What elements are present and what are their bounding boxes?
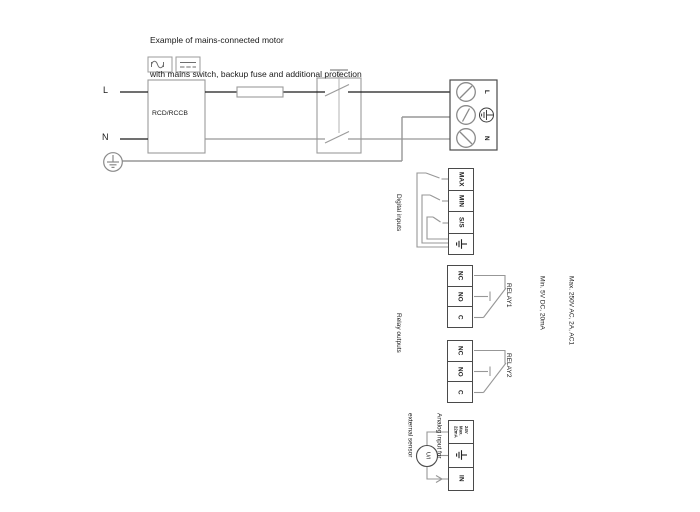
relay1-label: RELAY1 [503,283,513,325]
terminal-in-label: IN [458,475,465,482]
earth-ground-icon [455,449,468,461]
n-conductor-label: N [102,132,109,142]
relay1-c-label: C [457,315,464,320]
earth-ground-icon [480,108,494,122]
digital-input-switches [417,173,448,247]
terminal-min: MIN [449,191,473,213]
rcd-label: RCD/RCCB [152,110,188,117]
relay1-terminal-c: C [448,307,472,327]
relay2-c-label: C [457,390,464,395]
digital-inputs-section-label: Digital inputs [391,186,405,240]
relay1-terminal-block: NC NO C [447,265,473,328]
analog-label-line-1: Analog input for [434,413,444,493]
relay2-nc-label: NC [457,346,464,356]
relay-rating-text: Max. 250V AC, 2A, AC1 Min. 5V DC, 20mA [517,276,595,382]
diagram-title: Example of mains-connected motor with ma… [150,13,362,103]
relay2-no-label: NO [457,367,464,377]
l-conductor-label: L [103,85,108,95]
title-line-2: with mains switch, backup fuse and addit… [150,69,362,80]
supply-max: Max. [458,426,463,438]
terminal-ss-label: S/S [458,217,465,228]
relay2-terminal-nc: NC [448,341,472,362]
earth-ground-icon [104,153,123,172]
terminal-ss: S/S [449,212,473,234]
supply-24v: 24V [464,426,469,438]
relay-rating-min: Min. 5V DC, 20mA [537,276,547,382]
earth-ground-icon [455,238,468,250]
relay-outputs-section-label: Relay outputs [391,303,405,363]
sensor-ui-label: U/I [420,446,435,466]
relay2-label: RELAY2 [503,353,513,395]
digital-inputs-terminal-block: MAX MIN S/S [448,168,474,255]
wiring-diagram: Example of mains-connected motor with ma… [0,0,700,512]
analog-label-line-2: external sensor [405,413,415,493]
relay1-no-label: NO [457,292,464,302]
terminal-24v: 24V Max. 22mA [449,421,473,444]
terminal-min-label: MIN [458,195,465,207]
terminal-max: MAX [449,169,473,191]
terminal-label-l: L [480,84,493,100]
terminal-analog-ground [449,444,473,467]
screw-terminal-icon [457,83,476,148]
relay1-contact [474,276,506,318]
terminal-max-label: MAX [458,172,465,187]
supply-ma: 22mA [453,426,458,438]
relay1-nc-label: NC [457,271,464,281]
relay-rating-max: Max. 250V AC, 2A, AC1 [566,276,576,382]
relay2-contact [474,351,506,393]
terminal-in: IN [449,468,473,490]
relay2-terminal-block: NC NO C [447,340,473,403]
terminal-ground [449,234,473,255]
terminal-24v-label: 24V Max. 22mA [453,426,469,438]
title-line-1: Example of mains-connected motor [150,35,362,46]
terminal-label-n: N [480,130,493,146]
relay2-terminal-c: C [448,382,472,402]
relay1-terminal-no: NO [448,287,472,308]
analog-terminal-block: 24V Max. 22mA IN [448,420,474,491]
relay1-terminal-nc: NC [448,266,472,287]
relay2-terminal-no: NO [448,362,472,383]
